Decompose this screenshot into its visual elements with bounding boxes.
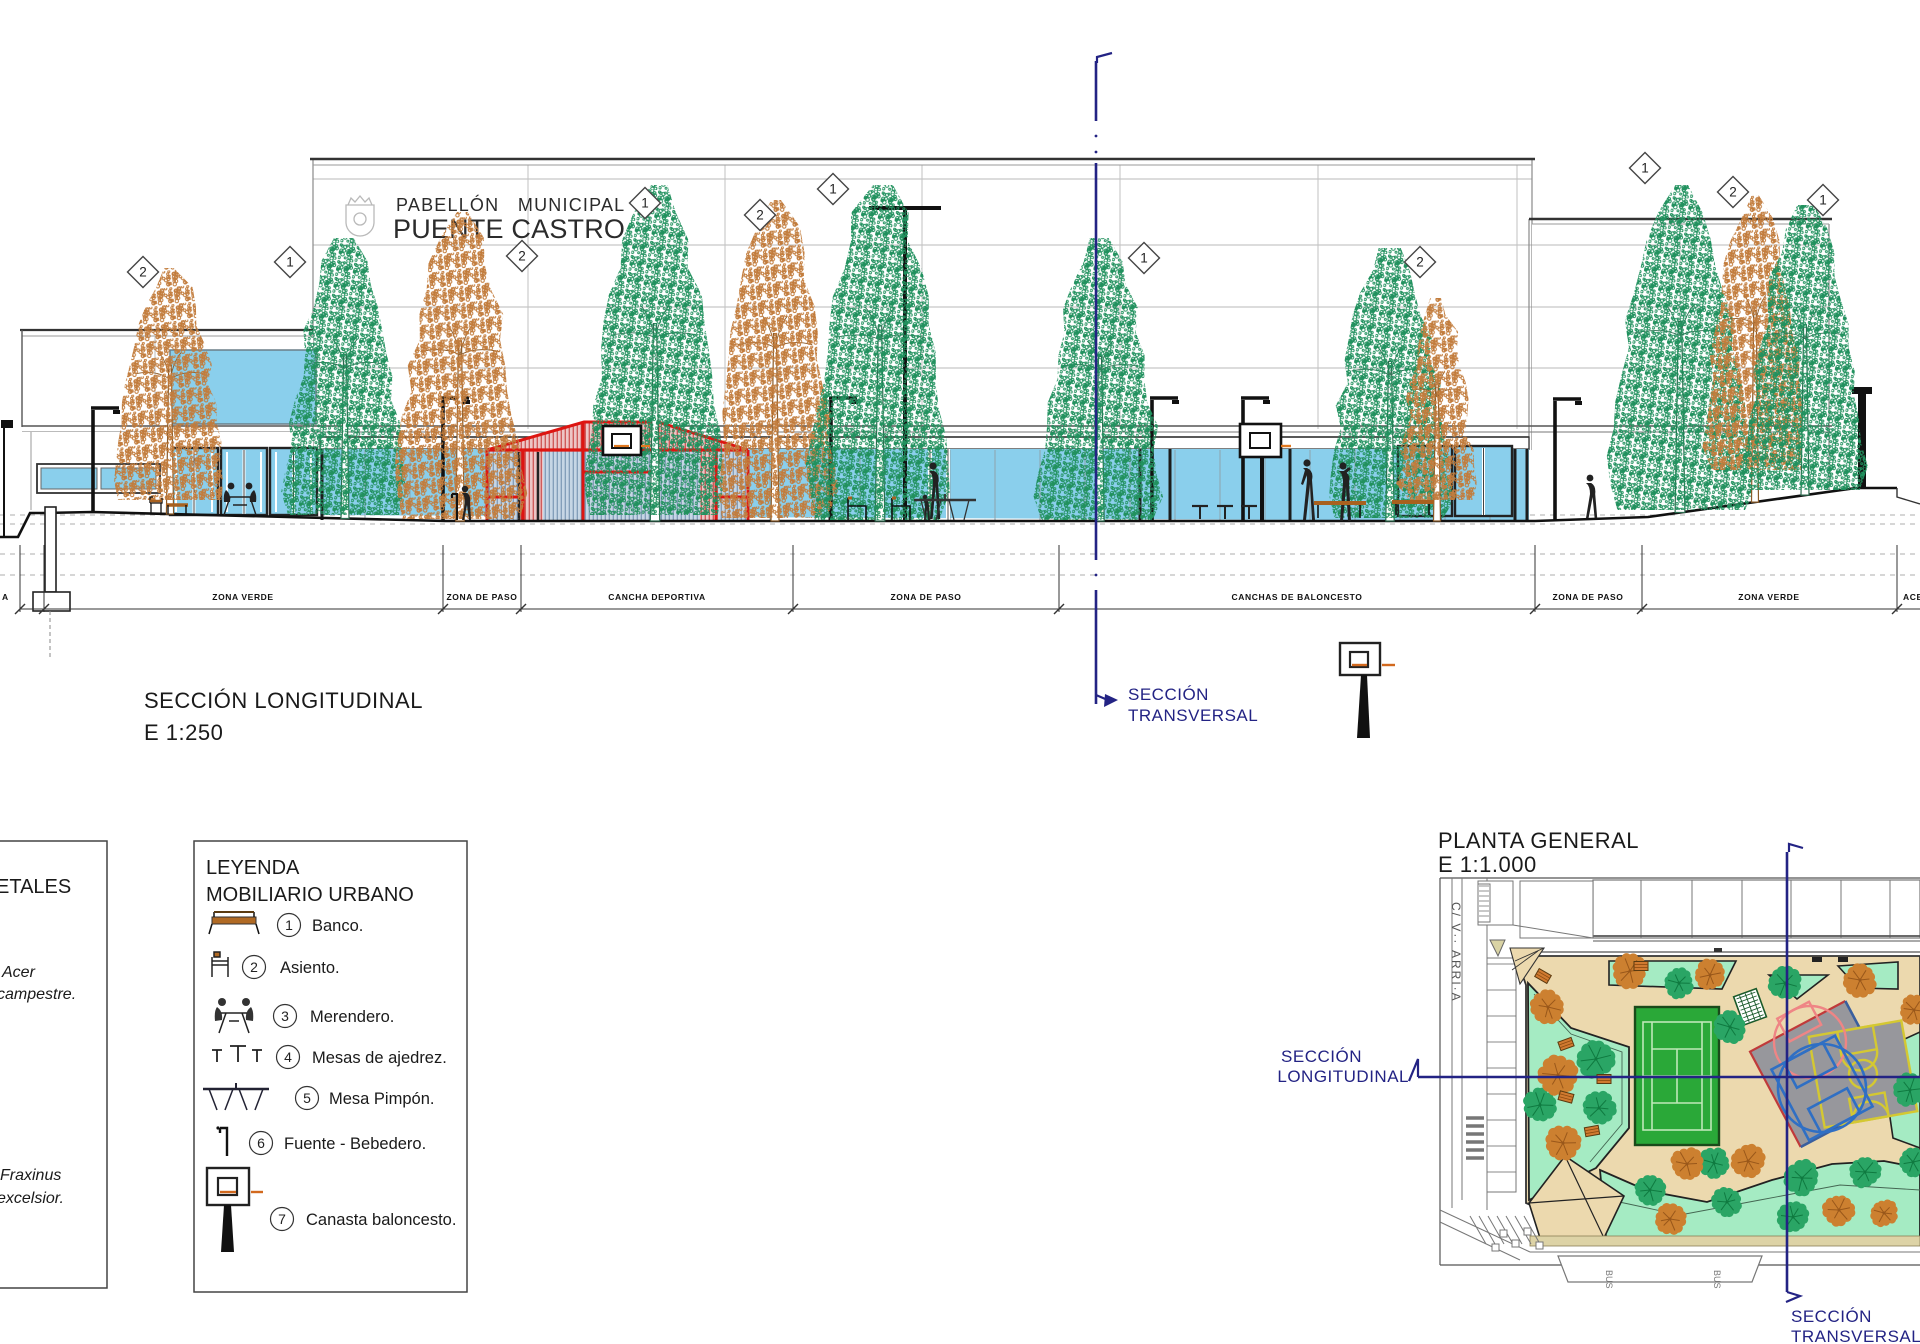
svg-text:SECCIÓN LONGITUDINAL: SECCIÓN LONGITUDINAL xyxy=(144,688,423,713)
svg-text:LONGITUDINAL: LONGITUDINAL xyxy=(1277,1067,1409,1086)
svg-text:2: 2 xyxy=(1416,255,1424,270)
svg-text:1: 1 xyxy=(286,255,294,270)
svg-text:1: 1 xyxy=(1819,193,1827,208)
svg-text:CANCHA DEPORTIVA: CANCHA DEPORTIVA xyxy=(608,592,705,602)
svg-text:ZONA DE PASO: ZONA DE PASO xyxy=(447,592,518,602)
svg-text:SECCIÓN: SECCIÓN xyxy=(1128,685,1209,704)
svg-text:Mesas de ajedrez.: Mesas de ajedrez. xyxy=(312,1049,447,1067)
svg-text:C/ V·· ARRI·A: C/ V·· ARRI·A xyxy=(1449,902,1463,1003)
svg-text:4: 4 xyxy=(284,1049,292,1065)
svg-text:MOBILIARIO URBANO: MOBILIARIO URBANO xyxy=(206,884,414,906)
svg-text:Merendero.: Merendero. xyxy=(310,1008,394,1026)
svg-text:campestre.: campestre. xyxy=(0,986,76,1003)
svg-text:Canasta baloncesto.: Canasta baloncesto. xyxy=(306,1211,456,1229)
svg-text:6: 6 xyxy=(257,1135,265,1151)
svg-text:TRANSVERSAL: TRANSVERSAL xyxy=(1128,706,1258,725)
svg-text:1: 1 xyxy=(1641,161,1649,176)
svg-text:2: 2 xyxy=(518,249,526,264)
svg-text:SECCIÓN: SECCIÓN xyxy=(1281,1047,1362,1066)
svg-text:ZONA DE PASO: ZONA DE PASO xyxy=(1553,592,1624,602)
svg-text:Asiento.: Asiento. xyxy=(280,959,340,977)
svg-text:5: 5 xyxy=(303,1090,311,1106)
svg-text:2: 2 xyxy=(1729,185,1737,200)
svg-text:E 1:250: E 1:250 xyxy=(144,720,223,745)
svg-text:excelsior.: excelsior. xyxy=(0,1190,64,1207)
svg-text:1: 1 xyxy=(1140,251,1148,266)
svg-text:LEYENDA: LEYENDA xyxy=(206,857,300,879)
svg-text:PUENTE CASTRO: PUENTE CASTRO xyxy=(393,214,625,244)
svg-text:ZONA DE PASO: ZONA DE PASO xyxy=(891,592,962,602)
svg-text:1: 1 xyxy=(641,196,649,211)
svg-text:Fraxinus: Fraxinus xyxy=(0,1167,61,1184)
svg-text:2: 2 xyxy=(139,265,147,280)
svg-text:Banco.: Banco. xyxy=(312,917,363,935)
svg-text:ACERA: ACERA xyxy=(1903,592,1920,602)
svg-text:BUS: BUS xyxy=(1604,1270,1614,1289)
svg-text:ZONA VERDE: ZONA VERDE xyxy=(1738,592,1799,602)
svg-text:ZONA VERDE: ZONA VERDE xyxy=(212,592,273,602)
svg-text:1: 1 xyxy=(285,917,293,933)
svg-text:3: 3 xyxy=(281,1008,289,1024)
svg-text:ETALES: ETALES xyxy=(0,876,71,898)
svg-text:7: 7 xyxy=(278,1211,286,1227)
svg-text:TRANSVERSAL: TRANSVERSAL xyxy=(1791,1327,1920,1344)
svg-text:SECCIÓN: SECCIÓN xyxy=(1791,1307,1872,1326)
svg-text:E 1:1.000: E 1:1.000 xyxy=(1438,852,1537,877)
svg-text:PLANTA GENERAL: PLANTA GENERAL xyxy=(1438,828,1639,853)
svg-text:1: 1 xyxy=(829,182,837,197)
svg-text:PABELLÓN MUNICIPAL: PABELLÓN MUNICIPAL xyxy=(396,194,625,215)
svg-text:2: 2 xyxy=(250,959,258,975)
svg-text:Fuente - Bebedero.: Fuente - Bebedero. xyxy=(284,1135,426,1153)
svg-text:Mesa Pimpón.: Mesa Pimpón. xyxy=(329,1090,434,1108)
svg-text:2: 2 xyxy=(756,208,764,223)
svg-text:CANCHAS DE BALONCESTO: CANCHAS DE BALONCESTO xyxy=(1232,592,1363,602)
svg-text:Acer: Acer xyxy=(1,964,36,981)
svg-text:A: A xyxy=(2,592,8,602)
svg-text:BUS: BUS xyxy=(1712,1270,1722,1289)
